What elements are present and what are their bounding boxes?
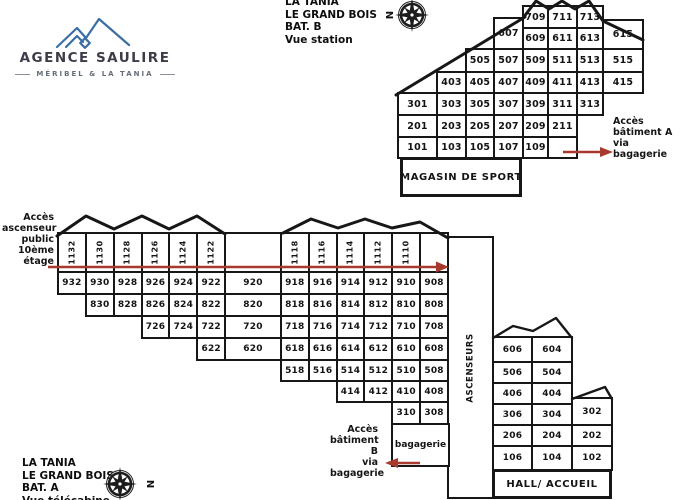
room-label-409: 409 [525, 77, 545, 88]
agency-logo: AGENCE SAULIRE MÉRIBEL & LA TANIA [15, 50, 175, 78]
room-710: 710 [391, 315, 421, 339]
room-label-507: 507 [498, 55, 518, 66]
note-access-a-line3: via [613, 138, 683, 149]
room-label-509: 509 [525, 55, 545, 66]
room-label-608: 608 [424, 344, 443, 354]
room-label-808: 808 [424, 300, 443, 310]
room-504: 504 [531, 361, 573, 384]
right-wing-roofline [493, 318, 572, 338]
room-label-908: 908 [424, 278, 443, 288]
room-709: 709 [522, 5, 549, 29]
room-label-305: 305 [470, 99, 490, 110]
room-306: 306 [492, 403, 533, 426]
room-label-724: 724 [174, 322, 193, 332]
room-708: 708 [419, 315, 449, 339]
room-label-404: 404 [542, 389, 561, 399]
room-label-622: 622 [202, 344, 221, 354]
room-label-615: 615 [613, 29, 633, 40]
room-608: 608 [419, 337, 449, 361]
room-label-610: 610 [397, 344, 416, 354]
room-label-816: 816 [313, 300, 332, 310]
room-label-109: 109 [525, 142, 545, 153]
legend-bat-a-line3: BAT. A [22, 482, 114, 495]
room-label-518: 518 [285, 366, 304, 376]
room-label-204: 204 [542, 431, 561, 441]
room-label-104: 104 [542, 453, 561, 463]
room-label-1112: 1112 [374, 240, 383, 264]
room-412: 412 [363, 380, 393, 403]
room-932: 932 [57, 271, 87, 295]
room-label-415: 415 [613, 77, 633, 88]
legend-bat-a-line2: LE GRAND BOIS [22, 470, 114, 483]
note-access-b-line3: via [330, 457, 378, 468]
room-830: 830 [85, 293, 115, 317]
room-label-102: 102 [582, 453, 601, 463]
hall-accueil-box-label: HALL/ ACCUEIL [506, 479, 597, 490]
magasin-de-sport-box-label: MAGASIN DE SPORT [400, 172, 522, 183]
room-713: 713 [576, 5, 604, 29]
room-1116: 1116 [308, 232, 338, 273]
room-label-618: 618 [285, 344, 304, 354]
room-label-309: 309 [525, 99, 545, 110]
legend-bat-a: LA TANIA LE GRAND BOIS BAT. A Vue téléca… [22, 457, 114, 500]
legend-bat-b: LA TANIA LE GRAND BOIS BAT. B Vue statio… [285, 0, 377, 46]
room-718: 718 [280, 315, 310, 339]
room-label-924: 924 [174, 278, 193, 288]
room-label-406: 406 [503, 389, 522, 399]
room-label-720: 720 [243, 322, 262, 332]
room-301: 301 [397, 92, 438, 116]
room-label-828: 828 [118, 300, 137, 310]
room-label-616: 616 [313, 344, 332, 354]
room-label-411: 411 [552, 77, 572, 88]
magasin-de-sport-box: MAGASIN DE SPORT [400, 157, 522, 197]
room-label-405: 405 [470, 77, 490, 88]
room-label-206: 206 [503, 431, 522, 441]
room-label-514: 514 [341, 366, 360, 376]
room-label-515: 515 [613, 55, 633, 66]
room-512: 512 [363, 359, 393, 382]
mountain-logo-icon [57, 19, 129, 48]
room-label-604: 604 [542, 345, 561, 355]
note-access-a-line1: Accès [613, 116, 683, 127]
agency-tagline: MÉRIBEL & LA TANIA [36, 70, 153, 78]
room-822: 822 [196, 293, 226, 317]
room-406: 406 [492, 382, 533, 405]
room-313: 313 [576, 92, 604, 116]
room-label-211: 211 [552, 121, 572, 132]
room-label-714: 714 [341, 322, 360, 332]
room-label-302: 302 [582, 407, 601, 417]
room-309: 309 [522, 92, 549, 116]
note-access-building-a: Accès bâtiment A via bagagerie [613, 116, 683, 160]
room-label-713: 713 [580, 12, 600, 23]
room-607: 607 [493, 17, 524, 50]
room-label-722: 722 [202, 322, 221, 332]
room-613: 613 [576, 27, 604, 50]
room-207: 207 [493, 114, 524, 138]
room-label-928: 928 [118, 278, 137, 288]
room-508: 508 [419, 359, 449, 382]
room-label-403: 403 [441, 77, 461, 88]
room-label-407: 407 [498, 77, 518, 88]
room-label-824: 824 [174, 300, 193, 310]
room-303: 303 [436, 92, 467, 116]
room-109: 109 [522, 136, 549, 159]
legend-bat-b-line3: BAT. B [285, 21, 377, 34]
room-label-207: 207 [498, 121, 518, 132]
room-label-822: 822 [202, 300, 221, 310]
room-label-508: 508 [424, 366, 443, 376]
room-label-910: 910 [397, 278, 416, 288]
room-label-914: 914 [341, 278, 360, 288]
room-label-303: 303 [441, 99, 461, 110]
note-public-elevator-line2: ascenseur [2, 223, 54, 234]
room-711: 711 [547, 5, 578, 29]
note-access-a-line2: bâtiment A [613, 127, 683, 138]
room-211: 211 [547, 114, 578, 138]
hall-accueil-box: HALL/ ACCUEIL [492, 469, 612, 499]
room-label-413: 413 [580, 77, 600, 88]
room-304: 304 [531, 403, 573, 426]
room-414: 414 [336, 380, 366, 403]
room-label-710: 710 [397, 322, 416, 332]
room-label-105: 105 [470, 142, 490, 153]
room-307: 307 [493, 92, 524, 116]
note-access-b-line4: bagagerie [330, 468, 378, 479]
room-label-106: 106 [503, 453, 522, 463]
room-label-1110: 1110 [402, 240, 411, 264]
room-201: 201 [397, 114, 438, 138]
room-612: 612 [363, 337, 393, 361]
room-1122: 1122 [196, 232, 226, 273]
room-label-412: 412 [369, 387, 388, 397]
room-714: 714 [336, 315, 366, 339]
room-1130: 1130 [85, 232, 115, 273]
room-label-308: 308 [424, 408, 443, 418]
room-1124: 1124 [168, 232, 198, 273]
room-810: 810 [391, 293, 421, 317]
room-label-313: 313 [580, 99, 600, 110]
room-label-510: 510 [397, 366, 416, 376]
room-label-606: 606 [503, 345, 522, 355]
room-408: 408 [419, 380, 449, 403]
room-908: 908 [419, 271, 449, 295]
room-404: 404 [531, 382, 573, 405]
room-label-614: 614 [341, 344, 360, 354]
room-label-107: 107 [498, 142, 518, 153]
room-308: 308 [419, 401, 449, 425]
room-label-311: 311 [552, 99, 572, 110]
room-105: 105 [465, 136, 495, 159]
room-label-1118: 1118 [290, 240, 299, 264]
note-public-elevator: Accès ascenseur public 10ème étage [2, 212, 54, 267]
room-label-820: 820 [243, 300, 262, 310]
room-empty [224, 232, 282, 273]
room-label-912: 912 [369, 278, 388, 288]
room-label-814: 814 [341, 300, 360, 310]
room-411: 411 [547, 71, 578, 94]
room-918: 918 [280, 271, 310, 295]
room-label-1128: 1128 [123, 240, 132, 264]
room-1112: 1112 [363, 232, 393, 273]
room-label-512: 512 [369, 366, 388, 376]
room-label-607: 607 [498, 28, 518, 39]
room-label-310: 310 [397, 408, 416, 418]
bagagerie-box-label: bagagerie [395, 440, 446, 450]
room-413: 413 [576, 71, 604, 94]
note-access-b-line1: Accès [330, 424, 378, 435]
note-public-elevator-line3: public [2, 234, 54, 245]
room-912: 912 [363, 271, 393, 295]
room-509: 509 [522, 48, 549, 73]
room-102: 102 [571, 445, 613, 471]
room-924: 924 [168, 271, 198, 295]
room-808: 808 [419, 293, 449, 317]
room-510: 510 [391, 359, 421, 382]
room-107: 107 [493, 136, 524, 159]
room-410: 410 [391, 380, 421, 403]
room-label-101: 101 [407, 142, 427, 153]
note-public-elevator-line5: étage [2, 256, 54, 267]
room-label-1116: 1116 [318, 240, 327, 264]
room-722: 722 [196, 315, 226, 339]
north-label: N [144, 480, 155, 488]
room-label-716: 716 [313, 322, 332, 332]
room-empty [419, 232, 449, 273]
room-label-1124: 1124 [179, 240, 188, 264]
note-access-building-b: Accès bâtiment B via bagagerie [330, 424, 378, 479]
room-1132: 1132 [57, 232, 87, 273]
room-409: 409 [522, 71, 549, 94]
room-empty [547, 136, 578, 159]
room-label-812: 812 [369, 300, 388, 310]
room-1128: 1128 [113, 232, 143, 273]
room-513: 513 [576, 48, 604, 73]
room-922: 922 [196, 271, 226, 295]
room-828: 828 [113, 293, 143, 317]
room-label-304: 304 [542, 410, 561, 420]
ascenseurs-shaft-label: ASCENSEURS [466, 333, 476, 402]
room-618: 618 [280, 337, 310, 361]
legend-bat-b-line2: LE GRAND BOIS [285, 9, 377, 22]
room-label-1130: 1130 [95, 240, 104, 264]
room-label-620: 620 [243, 344, 262, 354]
room-label-611: 611 [552, 33, 572, 44]
room-926: 926 [141, 271, 171, 295]
room-label-711: 711 [552, 12, 572, 23]
room-106: 106 [492, 445, 533, 471]
room-606: 606 [492, 336, 533, 363]
room-label-709: 709 [525, 12, 545, 23]
room-812: 812 [363, 293, 393, 317]
room-label-307: 307 [498, 99, 518, 110]
agency-tagline-row: MÉRIBEL & LA TANIA [15, 70, 175, 78]
room-726: 726 [141, 315, 171, 339]
room-405: 405 [465, 71, 495, 94]
room-604: 604 [531, 336, 573, 363]
compass-rose-icon [395, 0, 429, 32]
room-620: 620 [224, 337, 282, 361]
room-302: 302 [571, 397, 613, 426]
room-310: 310 [391, 401, 421, 425]
room-label-810: 810 [397, 300, 416, 310]
legend-bat-a-line1: LA TANIA [22, 457, 114, 470]
room-label-513: 513 [580, 55, 600, 66]
room-712: 712 [363, 315, 393, 339]
room-label-918: 918 [285, 278, 304, 288]
room-label-613: 613 [580, 33, 600, 44]
room-label-504: 504 [542, 368, 561, 378]
room-label-201: 201 [407, 121, 427, 132]
room-609: 609 [522, 27, 549, 50]
room-415: 415 [602, 71, 644, 94]
room-label-826: 826 [146, 300, 165, 310]
room-label-1126: 1126 [151, 240, 160, 264]
room-label-506: 506 [503, 368, 522, 378]
room-724: 724 [168, 315, 198, 339]
room-204: 204 [531, 424, 573, 447]
room-616: 616 [308, 337, 338, 361]
room-928: 928 [113, 271, 143, 295]
room-label-203: 203 [441, 121, 461, 132]
room-505: 505 [465, 48, 495, 73]
room-label-718: 718 [285, 322, 304, 332]
room-403: 403 [436, 71, 467, 94]
room-515: 515 [602, 48, 644, 73]
room-label-408: 408 [424, 387, 443, 397]
room-311: 311 [547, 92, 578, 116]
room-511: 511 [547, 48, 578, 73]
room-930: 930 [85, 271, 115, 295]
room-label-202: 202 [582, 431, 601, 441]
room-920: 920 [224, 271, 282, 295]
room-716: 716 [308, 315, 338, 339]
room-label-1122: 1122 [207, 240, 216, 264]
room-label-306: 306 [503, 410, 522, 420]
room-516: 516 [308, 359, 338, 382]
room-label-505: 505 [470, 55, 490, 66]
note-public-elevator-line1: Accès [2, 212, 54, 223]
room-507: 507 [493, 48, 524, 73]
room-910: 910 [391, 271, 421, 295]
north-label: N [383, 11, 394, 19]
room-label-516: 516 [313, 366, 332, 376]
note-access-b-line2: bâtiment B [330, 435, 378, 457]
room-814: 814 [336, 293, 366, 317]
room-816: 816 [308, 293, 338, 317]
room-1110: 1110 [391, 232, 421, 273]
room-611: 611 [547, 27, 578, 50]
room-label-922: 922 [202, 278, 221, 288]
room-407: 407 [493, 71, 524, 94]
room-614: 614 [336, 337, 366, 361]
room-209: 209 [522, 114, 549, 138]
room-label-301: 301 [407, 99, 427, 110]
room-518: 518 [280, 359, 310, 382]
tagline-dash-right [160, 74, 175, 75]
room-514: 514 [336, 359, 366, 382]
note-public-elevator-line4: 10ème [2, 245, 54, 256]
room-506: 506 [492, 361, 533, 384]
room-610: 610 [391, 337, 421, 361]
room-622: 622 [196, 337, 226, 361]
note-access-a-line4: bagagerie [613, 149, 683, 160]
bagagerie-box: bagagerie [391, 423, 450, 467]
room-305: 305 [465, 92, 495, 116]
room-916: 916 [308, 271, 338, 295]
room-206: 206 [492, 424, 533, 447]
legend-bat-a-line4: Vue télécabine [22, 495, 114, 500]
room-818: 818 [280, 293, 310, 317]
room-label-1114: 1114 [346, 240, 355, 264]
room-label-410: 410 [397, 387, 416, 397]
legend-bat-b-line4: Vue station [285, 34, 377, 47]
room-label-916: 916 [313, 278, 332, 288]
agency-name: AGENCE SAULIRE [15, 50, 175, 66]
room-826: 826 [141, 293, 171, 317]
room-label-414: 414 [341, 387, 360, 397]
room-label-209: 209 [525, 121, 545, 132]
room-label-612: 612 [369, 344, 388, 354]
tagline-dash-left [15, 74, 30, 75]
room-101: 101 [397, 136, 438, 159]
room-label-926: 926 [146, 278, 165, 288]
room-label-920: 920 [243, 278, 262, 288]
floor-plan: AGENCE SAULIRE MÉRIBEL & LA TANIA LA TAN… [0, 0, 700, 500]
room-label-511: 511 [552, 55, 572, 66]
room-205: 205 [465, 114, 495, 138]
room-104: 104 [531, 445, 573, 471]
room-103: 103 [436, 136, 467, 159]
room-label-818: 818 [285, 300, 304, 310]
room-820: 820 [224, 293, 282, 317]
room-203: 203 [436, 114, 467, 138]
room-label-932: 932 [62, 278, 81, 288]
room-824: 824 [168, 293, 198, 317]
room-label-830: 830 [90, 300, 109, 310]
room-1126: 1126 [141, 232, 171, 273]
ascenseurs-shaft: ASCENSEURS [447, 236, 494, 499]
room-label-205: 205 [470, 121, 490, 132]
room-label-103: 103 [441, 142, 461, 153]
room-label-726: 726 [146, 322, 165, 332]
room-720: 720 [224, 315, 282, 339]
room-label-930: 930 [90, 278, 109, 288]
room-label-708: 708 [424, 322, 443, 332]
room-label-609: 609 [525, 33, 545, 44]
room-label-712: 712 [369, 322, 388, 332]
room-202: 202 [571, 424, 613, 447]
room-1118: 1118 [280, 232, 310, 273]
room-1114: 1114 [336, 232, 366, 273]
room-label-1132: 1132 [67, 240, 76, 264]
legend-bat-b-line1: LA TANIA [285, 0, 377, 9]
room-914: 914 [336, 271, 366, 295]
room-615: 615 [602, 19, 644, 50]
